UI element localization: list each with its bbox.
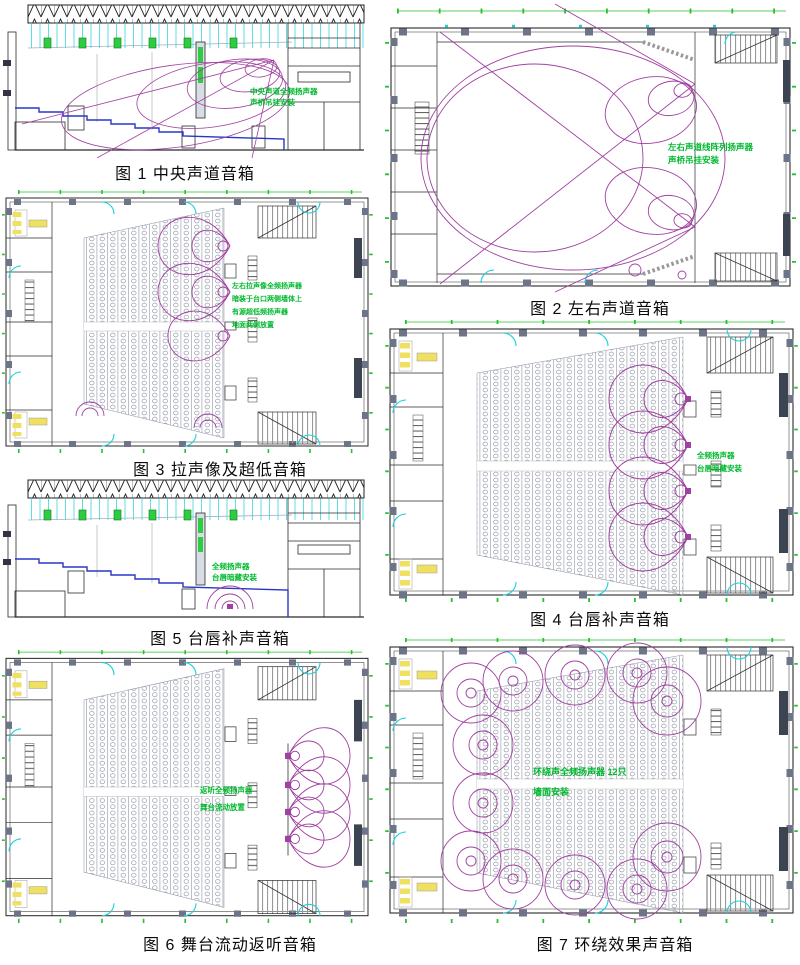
figure-3-annotation: 左右拉声像全频扬声器 暗装于台口两侧墙体上 有源超低频扬声器 地面两侧放置: [231, 281, 303, 329]
figure-7-drawing: 环绕声全频扬声器 12只 墙面安装: [385, 633, 798, 925]
figure-3-drawing: 左右拉声像全频扬声器 暗装于台口两侧墙体上 有源超低频扬声器 地面两侧放置: [2, 188, 374, 454]
figure-7-caption: 图 7 环绕效果声音箱: [450, 931, 780, 955]
figure-3-annotation-line-1: 左右拉声像全频扬声器: [231, 281, 303, 290]
figure-6-annotation-line-2: 舞台流动放置: [200, 802, 245, 812]
figure-3-annotation-line-3: 有源超低频扬声器: [232, 307, 289, 316]
figure-2-drawing: 左右声道线阵列扬声器 声桥吊挂安装: [385, 2, 798, 294]
figure-5-panel: 全频扬声器 台唇暗藏安装: [2, 477, 380, 623]
figure-6-drawing: 返听全频扬声器 舞台流动放置: [2, 648, 374, 924]
figure-3-annotation-line-4: 地面两侧放置: [232, 320, 274, 329]
speaker-coverage-pattern: [285, 728, 350, 867]
figure-2-annotation-line-2: 声桥吊挂安装: [667, 155, 720, 165]
side-rooms: [390, 333, 443, 595]
figure-5-caption: 图 5 台唇补声音箱: [70, 625, 370, 649]
side-rooms: [6, 663, 52, 916]
right-wall-blocks: [354, 238, 362, 398]
figure-3-panel: 左右拉声像全频扬声器 暗装于台口两侧墙体上 有源超低频扬声器 地面两侧放置: [2, 188, 374, 454]
figure-2-annotation-line-1: 左右声道线阵列扬声器: [667, 142, 754, 152]
hall-structure: [3, 505, 364, 617]
side-rooms: [6, 202, 52, 446]
figure-5-annotation: 全频扬声器 台唇暗藏安装: [211, 561, 257, 582]
figure-6-caption: 图 6 舞台流动返听音箱: [70, 931, 390, 955]
roof-truss: [28, 480, 364, 498]
stage-lip-boxes: [684, 709, 721, 873]
figure-1-annotation: 中央声道全频扬声器 声桥吊挂安装: [249, 86, 318, 107]
figure-7-annotation-line-1: 环绕声全频扬声器 12只: [533, 766, 627, 777]
figure-4-annotation-line-1: 全频扬声器: [696, 450, 735, 460]
figure-1-annotation-line-1: 中央声道全频扬声器: [250, 86, 318, 96]
figure-5-annotation-line-1: 全频扬声器: [211, 561, 250, 571]
figure-7-panel: 环绕声全频扬声器 12只 墙面安装: [385, 633, 798, 925]
stairs: [258, 667, 316, 914]
figure-1-annotation-line-2: 声桥吊挂安装: [249, 97, 295, 107]
figure-7-annotation-line-2: 墙面安装: [533, 786, 570, 797]
figure-5-annotation-line-2: 台唇暗藏安装: [212, 572, 257, 582]
figure-2-panel: 左右声道线阵列扬声器 声桥吊挂安装: [385, 2, 798, 294]
stage-lip-boxes: [684, 391, 721, 555]
right-wall-blocks: [779, 691, 788, 871]
stairs: [715, 35, 777, 281]
side-rooms: [391, 32, 437, 283]
figure-4-caption: 图 4 台唇补声音箱: [460, 606, 740, 630]
figure-4-panel: 全频扬声器 台唇暗藏安装: [385, 315, 798, 603]
figure-6-panel: 返听全频扬声器 舞台流动放置: [2, 648, 374, 924]
figure-2-annotation: 左右声道线阵列扬声器 声桥吊挂安装: [667, 142, 754, 165]
figure-6-annotation-line-1: 返听全频扬声器: [200, 785, 253, 795]
seating-area: [84, 208, 224, 438]
figure-1-drawing: 中央声道全频扬声器 声桥吊挂安装: [2, 2, 380, 158]
seating-area: [477, 337, 683, 595]
figure-4-drawing: 全频扬声器 台唇暗藏安装: [385, 315, 798, 603]
figure-1-panel: 中央声道全频扬声器 声桥吊挂安装: [2, 2, 380, 158]
figure-5-drawing: 全频扬声器 台唇暗藏安装: [2, 477, 380, 623]
outer-walls: [391, 28, 790, 286]
figure-4-annotation-line-2: 台唇暗藏安装: [697, 463, 742, 473]
figure-1-caption: 图 1 中央声道音箱: [40, 160, 330, 184]
figure-3-annotation-line-2: 暗装于台口两侧墙体上: [232, 294, 302, 303]
drawing-sheet: 中央声道全频扬声器 声桥吊挂安装 图 1 中央声道音箱: [0, 0, 800, 965]
right-wall-blocks: [779, 373, 788, 553]
side-rooms: [390, 651, 443, 913]
roof-truss: [28, 5, 364, 23]
stage-lip-boxes: [225, 256, 257, 402]
stairs: [707, 655, 773, 911]
door-arcs: [445, 26, 775, 283]
right-wall-blocks: [354, 700, 362, 866]
